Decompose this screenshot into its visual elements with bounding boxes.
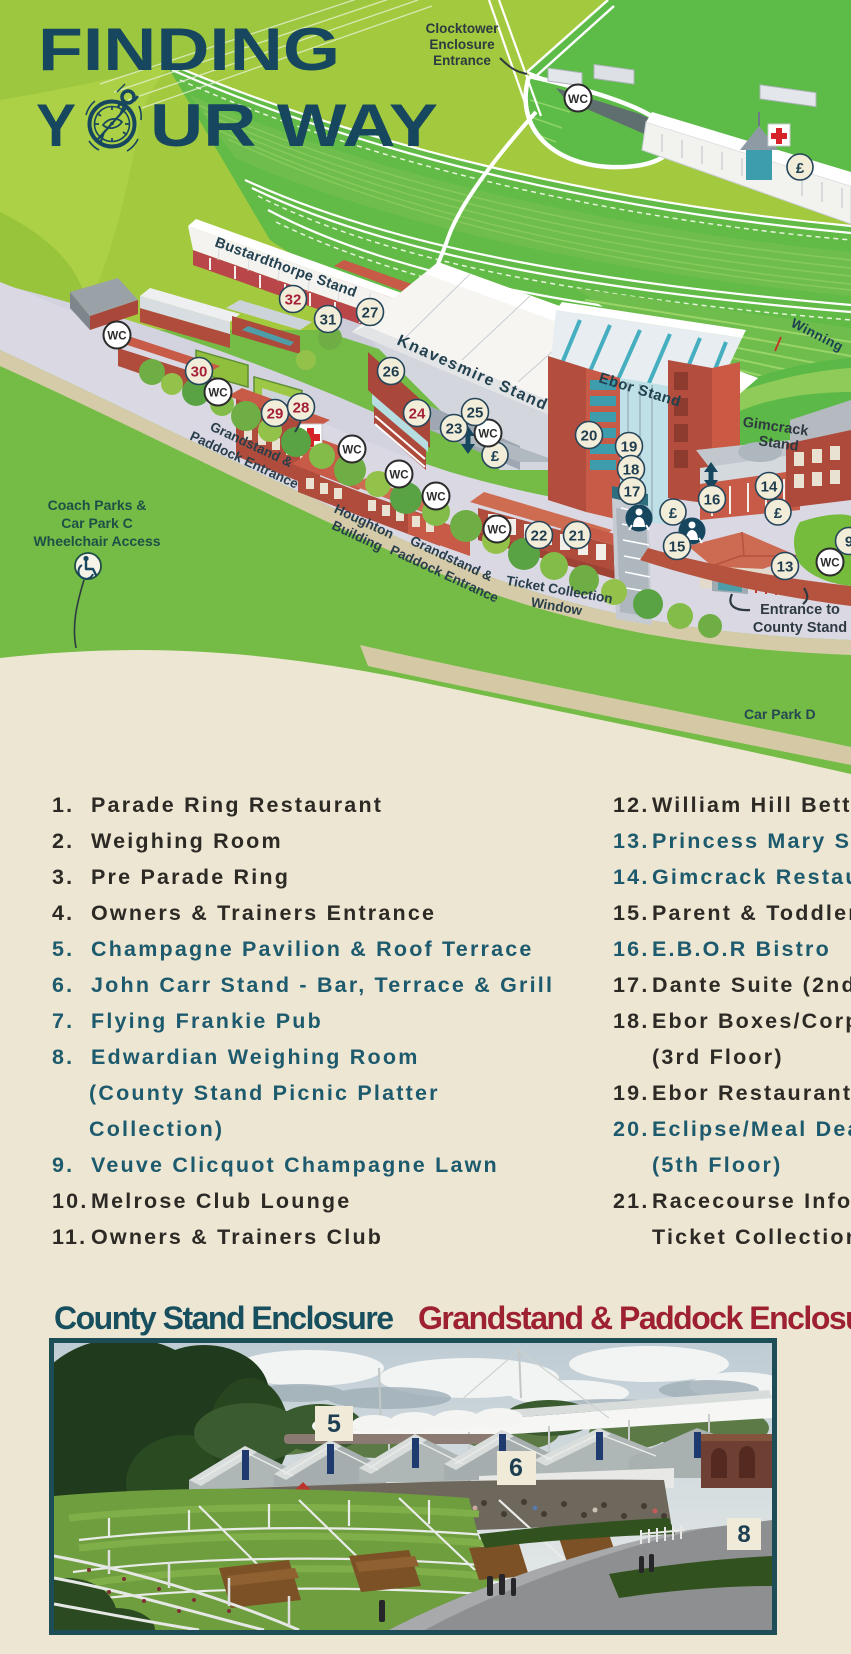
svg-text:18: 18 (623, 462, 640, 479)
svg-text:£: £ (774, 505, 783, 522)
svg-text:Coach Parks &: Coach Parks & (48, 497, 147, 513)
svg-text:Enclosure: Enclosure (429, 37, 495, 52)
svg-text:£: £ (796, 160, 805, 177)
svg-text:WC: WC (342, 445, 361, 457)
svg-text:15: 15 (669, 539, 686, 556)
svg-text:32: 32 (285, 292, 302, 309)
svg-text:31: 31 (320, 312, 337, 329)
svg-text:WC: WC (389, 470, 408, 482)
svg-text:Clocktower: Clocktower (426, 21, 500, 36)
svg-text:14: 14 (761, 479, 778, 496)
svg-text:Entrance to: Entrance to (760, 602, 840, 618)
svg-text:19: 19 (621, 439, 638, 456)
svg-text:13: 13 (777, 559, 794, 576)
svg-text:8: 8 (737, 1521, 750, 1548)
svg-text:28: 28 (293, 400, 310, 417)
svg-text:UR WAY: UR WAY (150, 92, 438, 159)
svg-text:WC: WC (568, 92, 588, 106)
svg-text:£: £ (669, 505, 678, 522)
svg-text:20: 20 (581, 428, 598, 445)
svg-text:Car Park D: Car Park D (744, 706, 816, 722)
svg-text:Y: Y (36, 92, 76, 159)
svg-text:£: £ (491, 448, 500, 465)
svg-text:WC: WC (820, 558, 839, 570)
svg-text:5: 5 (327, 1410, 341, 1438)
svg-text:FINDING: FINDING (38, 16, 340, 83)
svg-text:WC: WC (426, 492, 445, 504)
svg-text:26: 26 (383, 364, 400, 381)
svg-text:23: 23 (446, 421, 463, 438)
svg-text:WC: WC (478, 429, 497, 441)
svg-text:24: 24 (409, 406, 426, 423)
svg-text:29: 29 (267, 406, 284, 423)
svg-text:17: 17 (624, 484, 641, 501)
svg-text:Entrance: Entrance (433, 53, 491, 68)
svg-text:16: 16 (704, 492, 721, 509)
svg-text:WC: WC (107, 331, 126, 343)
svg-text:9: 9 (845, 534, 851, 551)
svg-text:30: 30 (191, 364, 208, 381)
svg-text:WC: WC (208, 388, 227, 400)
svg-text:County Stand: County Stand (753, 620, 847, 636)
svg-text:6: 6 (509, 1454, 523, 1482)
svg-text:27: 27 (362, 305, 379, 322)
svg-text:Car Park C: Car Park C (61, 515, 133, 531)
svg-text:25: 25 (467, 405, 484, 422)
svg-text:WC: WC (487, 525, 506, 537)
svg-text:21: 21 (569, 528, 586, 545)
svg-text:Wheelchair Access: Wheelchair Access (33, 533, 160, 549)
svg-text:22: 22 (531, 528, 548, 545)
